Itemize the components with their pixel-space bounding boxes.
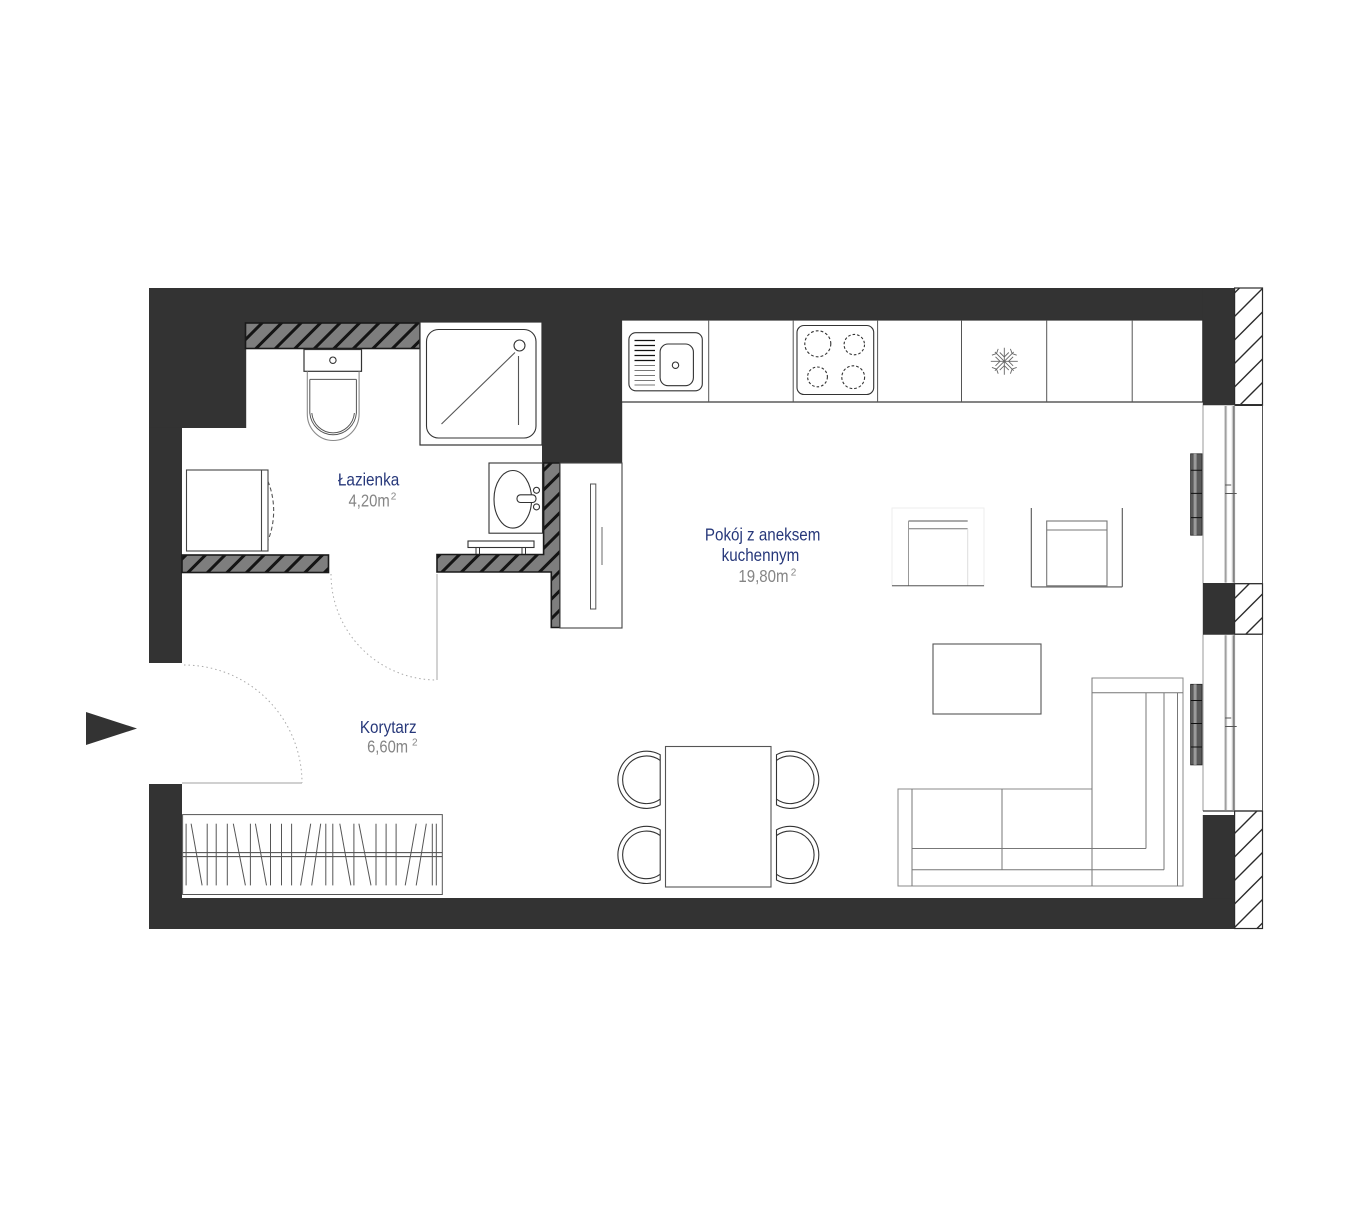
svg-text:4,20m: 4,20m: [349, 490, 390, 510]
svg-text:Łazienka: Łazienka: [338, 469, 400, 489]
svg-text:19,80m: 19,80m: [738, 566, 788, 586]
svg-text:2: 2: [412, 738, 418, 749]
svg-text:kuchennym: kuchennym: [722, 545, 800, 565]
svg-text:2: 2: [791, 568, 797, 579]
svg-text:2: 2: [391, 492, 397, 503]
svg-text:Pokój z aneksem: Pokój z aneksem: [705, 525, 821, 545]
svg-text:Korytarz: Korytarz: [360, 717, 417, 737]
svg-text:6,60m: 6,60m: [367, 736, 408, 756]
